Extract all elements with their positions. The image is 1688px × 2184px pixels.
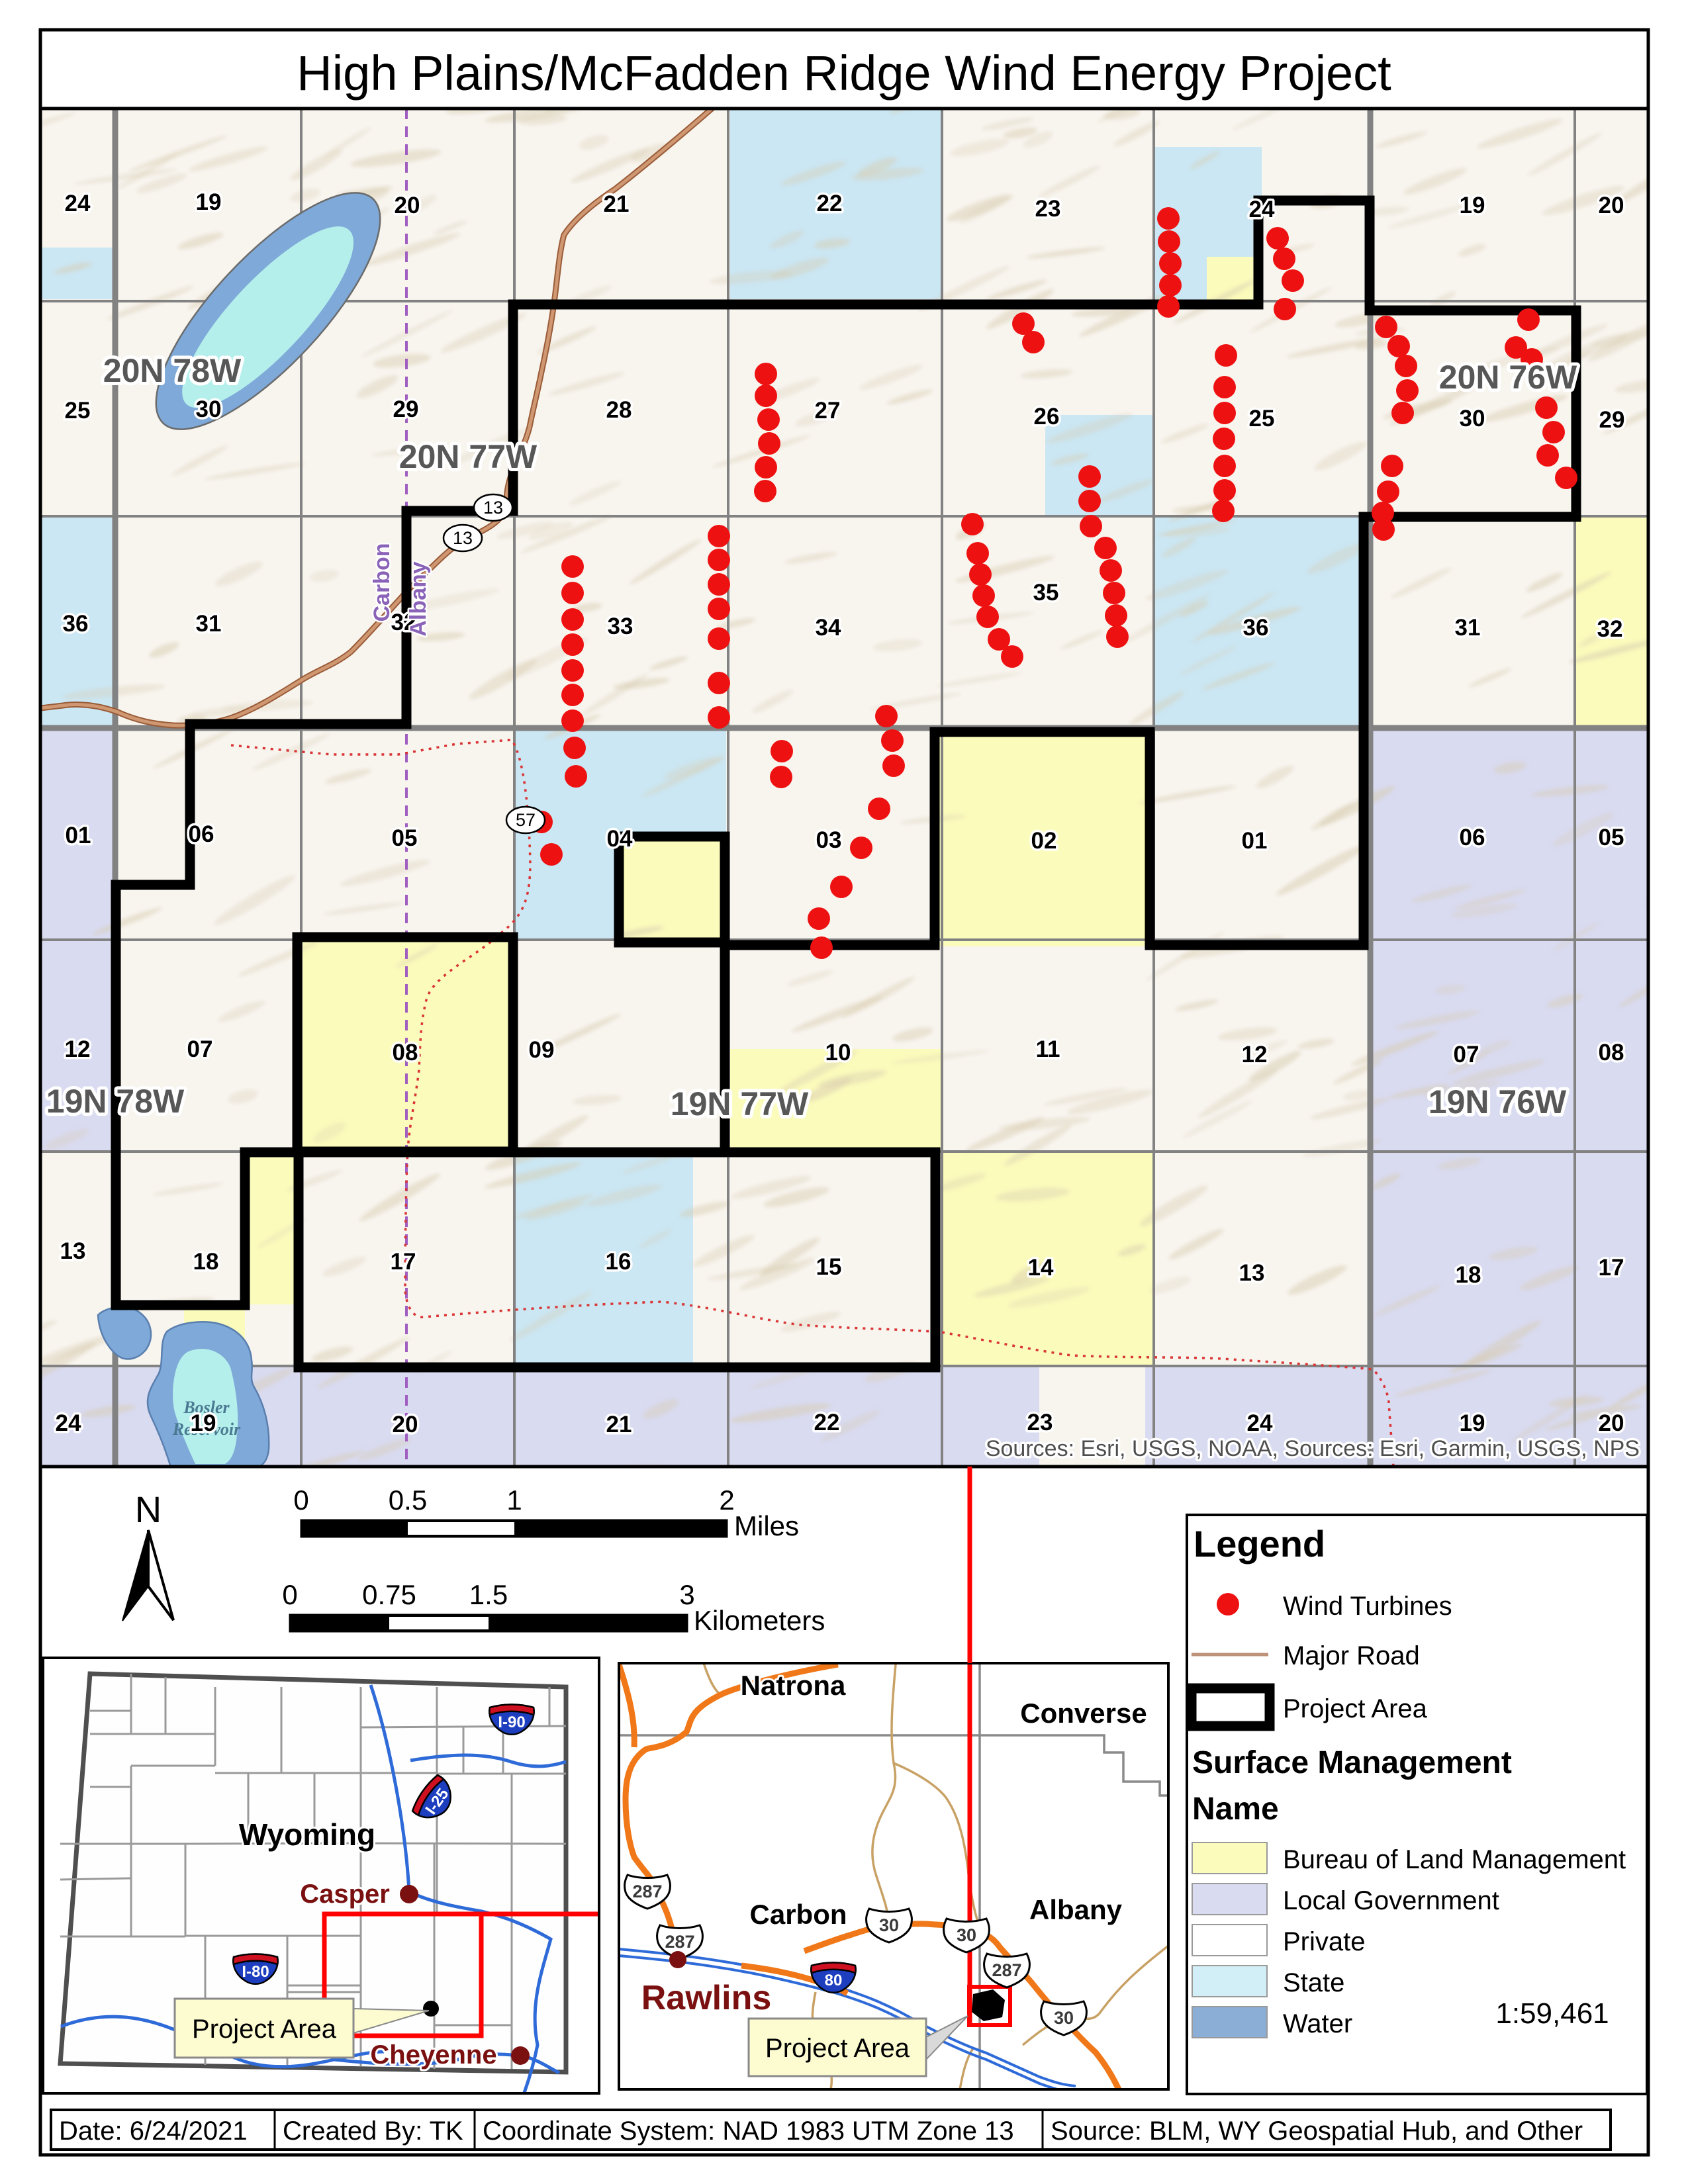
svg-text:30: 30 (1460, 406, 1485, 432)
svg-text:0.5: 0.5 (389, 1484, 427, 1516)
svg-text:27: 27 (815, 398, 841, 424)
svg-text:Cheyenne: Cheyenne (370, 2040, 496, 2070)
svg-text:Kilometers: Kilometers (694, 1605, 825, 1636)
svg-text:Rawlins: Rawlins (641, 1979, 772, 2017)
svg-text:30: 30 (196, 396, 222, 422)
svg-text:0: 0 (293, 1484, 308, 1516)
svg-text:Source: BLM, WY Geospatial Hub: Source: BLM, WY Geospatial Hub, and Othe… (1051, 2116, 1583, 2146)
svg-text:20: 20 (1599, 193, 1624, 218)
svg-text:287: 287 (665, 1932, 694, 1952)
svg-text:30: 30 (1054, 2008, 1074, 2028)
svg-text:36: 36 (1243, 615, 1269, 641)
svg-text:01: 01 (66, 823, 91, 848)
svg-text:Date: 6/24/2021: Date: 6/24/2021 (59, 2116, 248, 2146)
svg-text:2: 2 (719, 1484, 734, 1516)
svg-text:Project Area: Project Area (192, 2015, 337, 2044)
svg-text:Miles: Miles (734, 1510, 799, 1541)
svg-text:19: 19 (1460, 193, 1485, 218)
svg-text:Water: Water (1283, 2009, 1352, 2038)
svg-text:Surface Management: Surface Management (1192, 1745, 1512, 1780)
svg-text:30: 30 (879, 1915, 899, 1935)
svg-text:Project Area: Project Area (765, 2034, 910, 2063)
svg-text:05: 05 (392, 825, 418, 851)
svg-text:15: 15 (816, 1254, 842, 1280)
svg-text:31: 31 (196, 611, 222, 637)
svg-text:19: 19 (196, 189, 222, 215)
svg-text:24: 24 (1249, 197, 1275, 222)
svg-text:22: 22 (817, 191, 843, 216)
svg-text:Name: Name (1192, 1792, 1279, 1827)
svg-text:02: 02 (1031, 828, 1057, 854)
svg-text:Albany: Albany (1029, 1894, 1123, 1925)
svg-text:03: 03 (816, 827, 842, 853)
svg-text:08: 08 (393, 1040, 418, 1066)
svg-text:Wind Turbines: Wind Turbines (1283, 1592, 1452, 1621)
svg-text:57: 57 (516, 810, 536, 830)
svg-text:19N 77W: 19N 77W (671, 1085, 809, 1122)
svg-text:07: 07 (1454, 1042, 1479, 1068)
svg-text:0: 0 (282, 1579, 297, 1610)
svg-text:High Plains/McFadden Ridge Win: High Plains/McFadden Ridge Wind Energy P… (297, 46, 1391, 101)
svg-text:3: 3 (679, 1579, 694, 1610)
svg-text:14: 14 (1028, 1255, 1054, 1281)
svg-text:12: 12 (65, 1036, 91, 1062)
svg-text:287: 287 (632, 1882, 662, 1901)
svg-text:32: 32 (1597, 616, 1623, 642)
svg-text:29: 29 (1599, 407, 1625, 433)
svg-text:Bureau of Land Management: Bureau of Land Management (1283, 1845, 1626, 1874)
svg-text:34: 34 (816, 615, 841, 641)
svg-text:Natrona: Natrona (741, 1670, 846, 1701)
svg-text:20: 20 (393, 1412, 418, 1437)
svg-text:31: 31 (1455, 615, 1481, 641)
svg-text:12: 12 (1242, 1042, 1268, 1068)
svg-text:17: 17 (1599, 1255, 1624, 1281)
svg-text:19N 76W: 19N 76W (1429, 1083, 1567, 1120)
svg-text:11: 11 (1036, 1036, 1060, 1062)
svg-text:1:59,461: 1:59,461 (1495, 1997, 1609, 2030)
svg-text:Local Government: Local Government (1283, 1886, 1499, 1915)
svg-text:Wyoming: Wyoming (239, 1817, 375, 1852)
svg-text:17: 17 (391, 1249, 416, 1275)
svg-text:23: 23 (1027, 1410, 1053, 1435)
svg-text:25: 25 (65, 398, 91, 424)
svg-text:24: 24 (1247, 1410, 1273, 1436)
svg-text:I-90: I-90 (498, 1713, 525, 1731)
svg-text:20: 20 (1599, 1410, 1624, 1436)
svg-text:06: 06 (1460, 825, 1485, 850)
svg-text:Carbon: Carbon (369, 543, 395, 622)
svg-text:Converse: Converse (1020, 1698, 1147, 1729)
svg-text:06: 06 (189, 821, 214, 847)
svg-text:30: 30 (957, 1925, 976, 1945)
svg-text:23: 23 (1035, 196, 1061, 222)
svg-text:25: 25 (1249, 406, 1275, 432)
svg-text:33: 33 (608, 614, 633, 639)
svg-text:20: 20 (395, 193, 420, 218)
svg-text:Created By: TK: Created By: TK (283, 2116, 463, 2146)
svg-text:24: 24 (65, 191, 91, 216)
svg-text:35: 35 (1033, 580, 1059, 606)
svg-text:Major Road: Major Road (1283, 1641, 1420, 1670)
svg-text:13: 13 (1239, 1260, 1265, 1286)
svg-text:13: 13 (60, 1238, 86, 1264)
svg-text:08: 08 (1599, 1040, 1624, 1066)
svg-text:29: 29 (393, 396, 419, 422)
svg-text:21: 21 (606, 1412, 632, 1437)
svg-text:0.75: 0.75 (362, 1579, 416, 1610)
svg-text:20N 78W: 20N 78W (103, 352, 242, 389)
svg-text:N: N (135, 1488, 162, 1530)
svg-text:18: 18 (1456, 1262, 1481, 1288)
svg-text:19N 78W: 19N 78W (46, 1083, 185, 1120)
svg-text:19: 19 (1460, 1410, 1485, 1436)
svg-text:10: 10 (825, 1040, 851, 1066)
svg-text:287: 287 (992, 1960, 1021, 1980)
svg-text:Coordinate System: NAD 1983 UT: Coordinate System: NAD 1983 UTM Zone 13 (483, 2116, 1014, 2146)
svg-text:21: 21 (604, 191, 630, 217)
svg-text:24: 24 (56, 1410, 81, 1436)
svg-text:26: 26 (1034, 404, 1060, 430)
svg-text:Legend: Legend (1194, 1523, 1325, 1565)
svg-text:Albany: Albany (406, 561, 431, 636)
svg-text:07: 07 (187, 1036, 213, 1062)
svg-text:04: 04 (607, 826, 633, 852)
svg-text:01: 01 (1242, 828, 1268, 854)
svg-text:80: 80 (825, 1972, 843, 1989)
svg-text:13: 13 (453, 528, 473, 548)
svg-text:I-80: I-80 (242, 1963, 269, 1981)
svg-text:1.5: 1.5 (469, 1579, 508, 1610)
svg-text:19: 19 (191, 1410, 216, 1436)
svg-text:09: 09 (529, 1037, 555, 1063)
svg-text:05: 05 (1599, 825, 1624, 850)
svg-text:Project Area: Project Area (1283, 1694, 1428, 1723)
svg-text:28: 28 (606, 397, 632, 423)
svg-text:20N 77W: 20N 77W (399, 438, 538, 475)
svg-text:Carbon: Carbon (750, 1899, 847, 1930)
svg-text:Casper: Casper (300, 1880, 390, 1909)
svg-text:Private: Private (1283, 1927, 1366, 1956)
svg-text:16: 16 (606, 1249, 632, 1275)
svg-text:18: 18 (193, 1249, 219, 1275)
svg-text:State: State (1283, 1968, 1344, 1997)
svg-text:Sources: Esri, USGS, NOAA, Sou: Sources: Esri, USGS, NOAA, Sources: Esri… (986, 1436, 1640, 1461)
svg-text:36: 36 (63, 611, 89, 637)
svg-text:22: 22 (814, 1410, 840, 1435)
svg-text:1: 1 (506, 1484, 522, 1516)
svg-text:20N 76W: 20N 76W (1439, 359, 1577, 396)
svg-text:13: 13 (483, 498, 503, 518)
